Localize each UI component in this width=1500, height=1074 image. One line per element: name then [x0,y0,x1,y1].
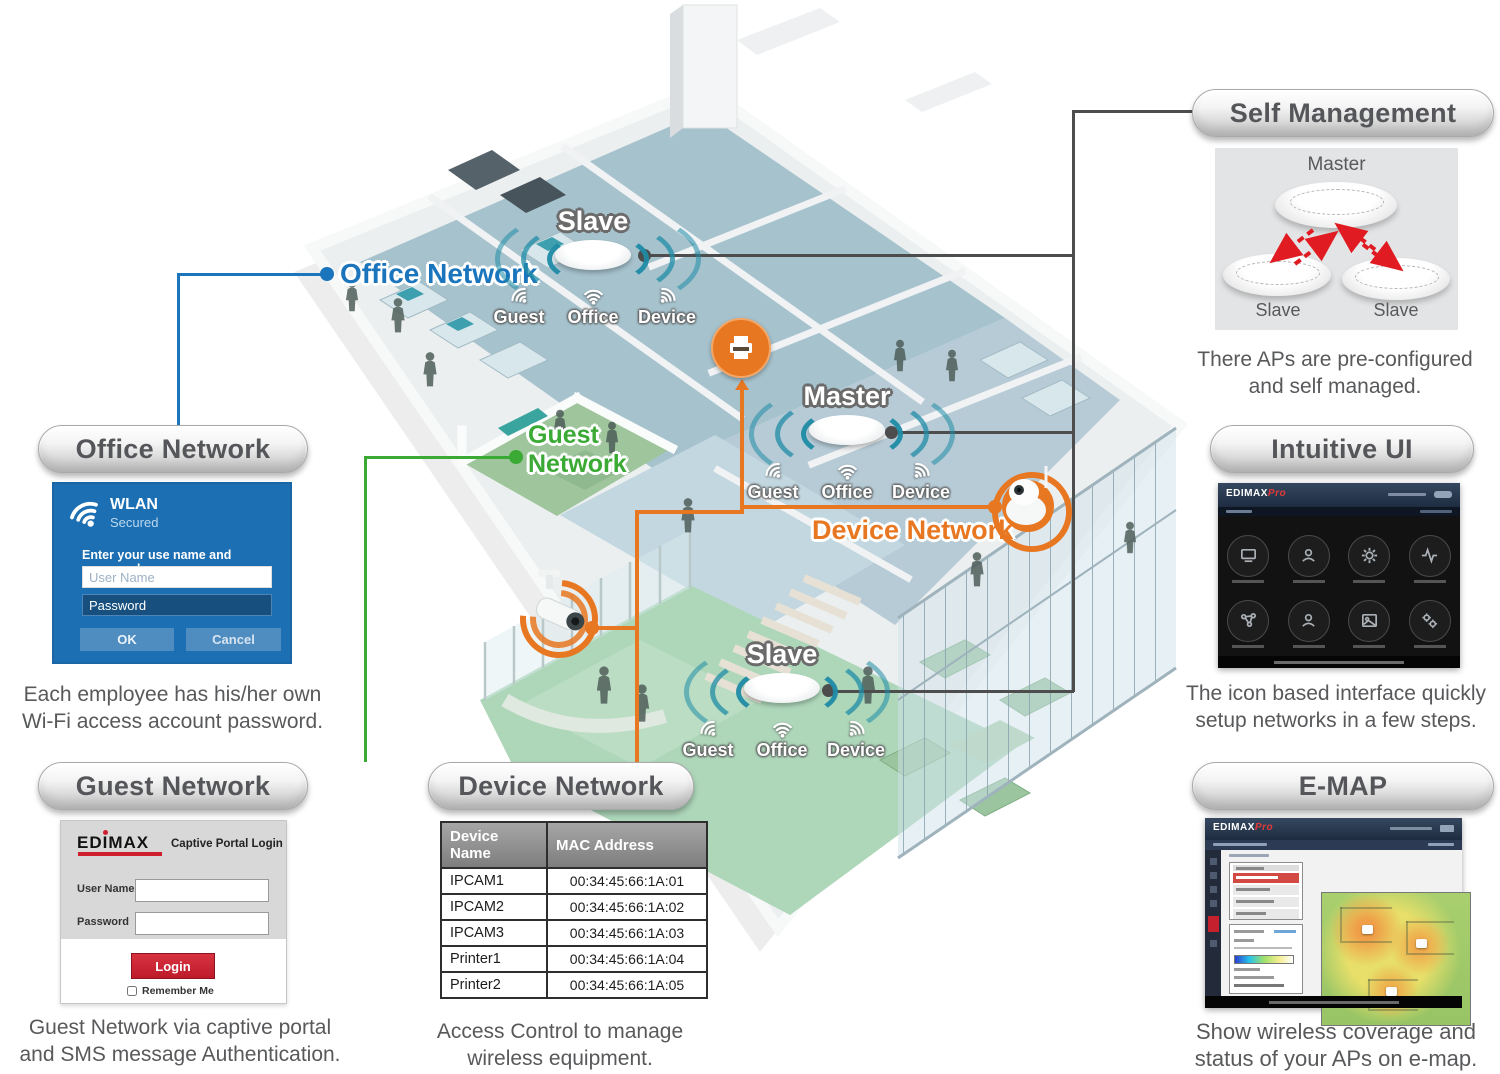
signal-gradient-bar [1234,955,1294,964]
portal-username-input[interactable] [135,879,269,902]
sm-trunk [1072,110,1075,692]
ptz-camera-icon [988,448,1072,544]
self-management-pill: Self Management [1192,89,1494,137]
sm-branch-pill [1072,110,1194,113]
wifi-office-icon [580,284,607,307]
guest-connector-h [364,456,516,459]
table-row: IPCAM100:34:45:66:1A:01 [441,868,707,894]
access-point-device [555,240,631,270]
wifi-office-icon [834,459,861,482]
wifi-icon [59,487,110,538]
intuitive-ui-caption: The icon based interface quickly setup n… [1172,680,1500,734]
nms-advanced-icon [1409,600,1451,642]
portal-password-label: Password [77,916,129,928]
guest-connector-dot [509,450,523,464]
emap-sidebar [1205,850,1221,997]
nms-security-icon [1288,600,1330,642]
emap-controls [1229,924,1303,994]
intuitive-ui-screenshot: EDIMAXPro [1218,483,1460,668]
captive-portal-dialog: EDIMAX Captive Portal Login User Name Pa… [60,820,287,1004]
edimax-logo-dot [103,830,108,835]
device-table: Device Name MAC Address IPCAM100:34:45:6… [440,821,708,999]
wlan-ok-button[interactable]: OK [80,628,174,651]
nms-device-icon [1227,535,1269,577]
emap-sidebar-active [1208,916,1219,932]
ap-label: Master [732,381,962,412]
device-connector-v1 [635,510,639,762]
office-caption: Each employee has his/her own Wi-Fi acce… [0,681,345,735]
emap-caption: Show wireless coverage and status of you… [1172,1018,1500,1072]
portal-username-label: User Name [77,883,134,895]
office-connector-h [177,273,329,276]
access-point-device [809,415,885,445]
intuitive-ui-pill: Intuitive UI [1210,425,1474,473]
office-connector-v [177,273,180,425]
nms-settings-icon [1348,535,1390,577]
infographic-canvas: Office Network Guest Network Device Netw… [0,0,1500,1074]
office-connector-dot [320,267,334,281]
device-connector-h1 [635,510,743,514]
guest-network-pill: Guest Network [38,762,308,810]
edimax-logo: EDIMAX [77,833,149,853]
remember-me-checkbox[interactable] [127,986,137,996]
sm-branch-slave1 [646,254,1074,257]
wlan-password-input[interactable] [82,594,272,616]
portal-login-button[interactable]: Login [131,953,215,979]
ap-slave-bottom: Slave Guest Office Device [667,625,897,757]
wlan-cancel-button[interactable]: Cancel [186,628,281,651]
table-row: IPCAM200:34:45:66:1A:02 [441,894,707,920]
portal-heading: Captive Portal Login [171,838,283,850]
edimax-pro-logo: EDIMAXPro [1213,822,1273,833]
nms-wireless-icon [1227,600,1269,642]
emap-ap-selected [1233,873,1299,883]
guest-caption: Guest Network via captive portal and SMS… [0,1014,360,1068]
wlan-username-input[interactable] [82,566,272,588]
self-management-caption: There APs are pre-configured and self ma… [1175,346,1495,400]
device-network-floor-label: Device Network [812,515,1013,546]
printer-icon [711,318,771,378]
nms-account-icon [1288,535,1330,577]
ap-master: Master Guest Office Device [732,367,962,499]
device-network-pill: Device Network [428,762,694,810]
building-floorplan [280,0,1220,1040]
access-point-device [744,673,820,703]
edimax-pro-logo: EDIMAXPro [1226,488,1286,499]
self-management-graphic: Master Slave Slave [1215,148,1458,330]
wifi-office-icon [769,717,796,740]
emap-ap-marker [1386,987,1397,996]
table-row: Printer100:34:45:66:1A:04 [441,946,707,972]
device-caption: Access Control to manage wireless equipm… [390,1018,730,1072]
office-network-pill: Office Network [38,425,308,473]
guest-network-floor-label: Guest Network [528,421,627,479]
emap-screenshot: EDIMAXPro [1205,818,1462,1008]
nms-image-icon [1348,600,1390,642]
wlan-login-dialog: WLAN Secured Enter your use name and pas… [52,482,292,664]
emap-ap-marker [1362,925,1373,934]
wlan-ssid: WLAN [110,496,158,514]
nms-diagnosis-icon [1409,535,1451,577]
bullet-camera-icon [514,566,606,658]
emap-ap-list [1229,862,1303,920]
guest-connector-v [364,456,367,762]
wlan-status: Secured [110,515,158,530]
ap-label: Slave [478,206,708,237]
ap-label: Slave [667,639,897,670]
sync-arrows [1215,148,1458,330]
table-row: IPCAM300:34:45:66:1A:03 [441,920,707,946]
emap-pill: E-MAP [1192,762,1494,810]
remember-me-label: Remember Me [142,985,214,997]
table-header-row: Device Name MAC Address [441,822,707,868]
emap-ap-marker [1416,939,1427,948]
ap-slave-top: Slave Guest Office Device [478,192,708,324]
portal-password-input[interactable] [135,912,269,935]
device-connector-h2 [740,505,992,509]
table-row: Printer200:34:45:66:1A:05 [441,972,707,998]
